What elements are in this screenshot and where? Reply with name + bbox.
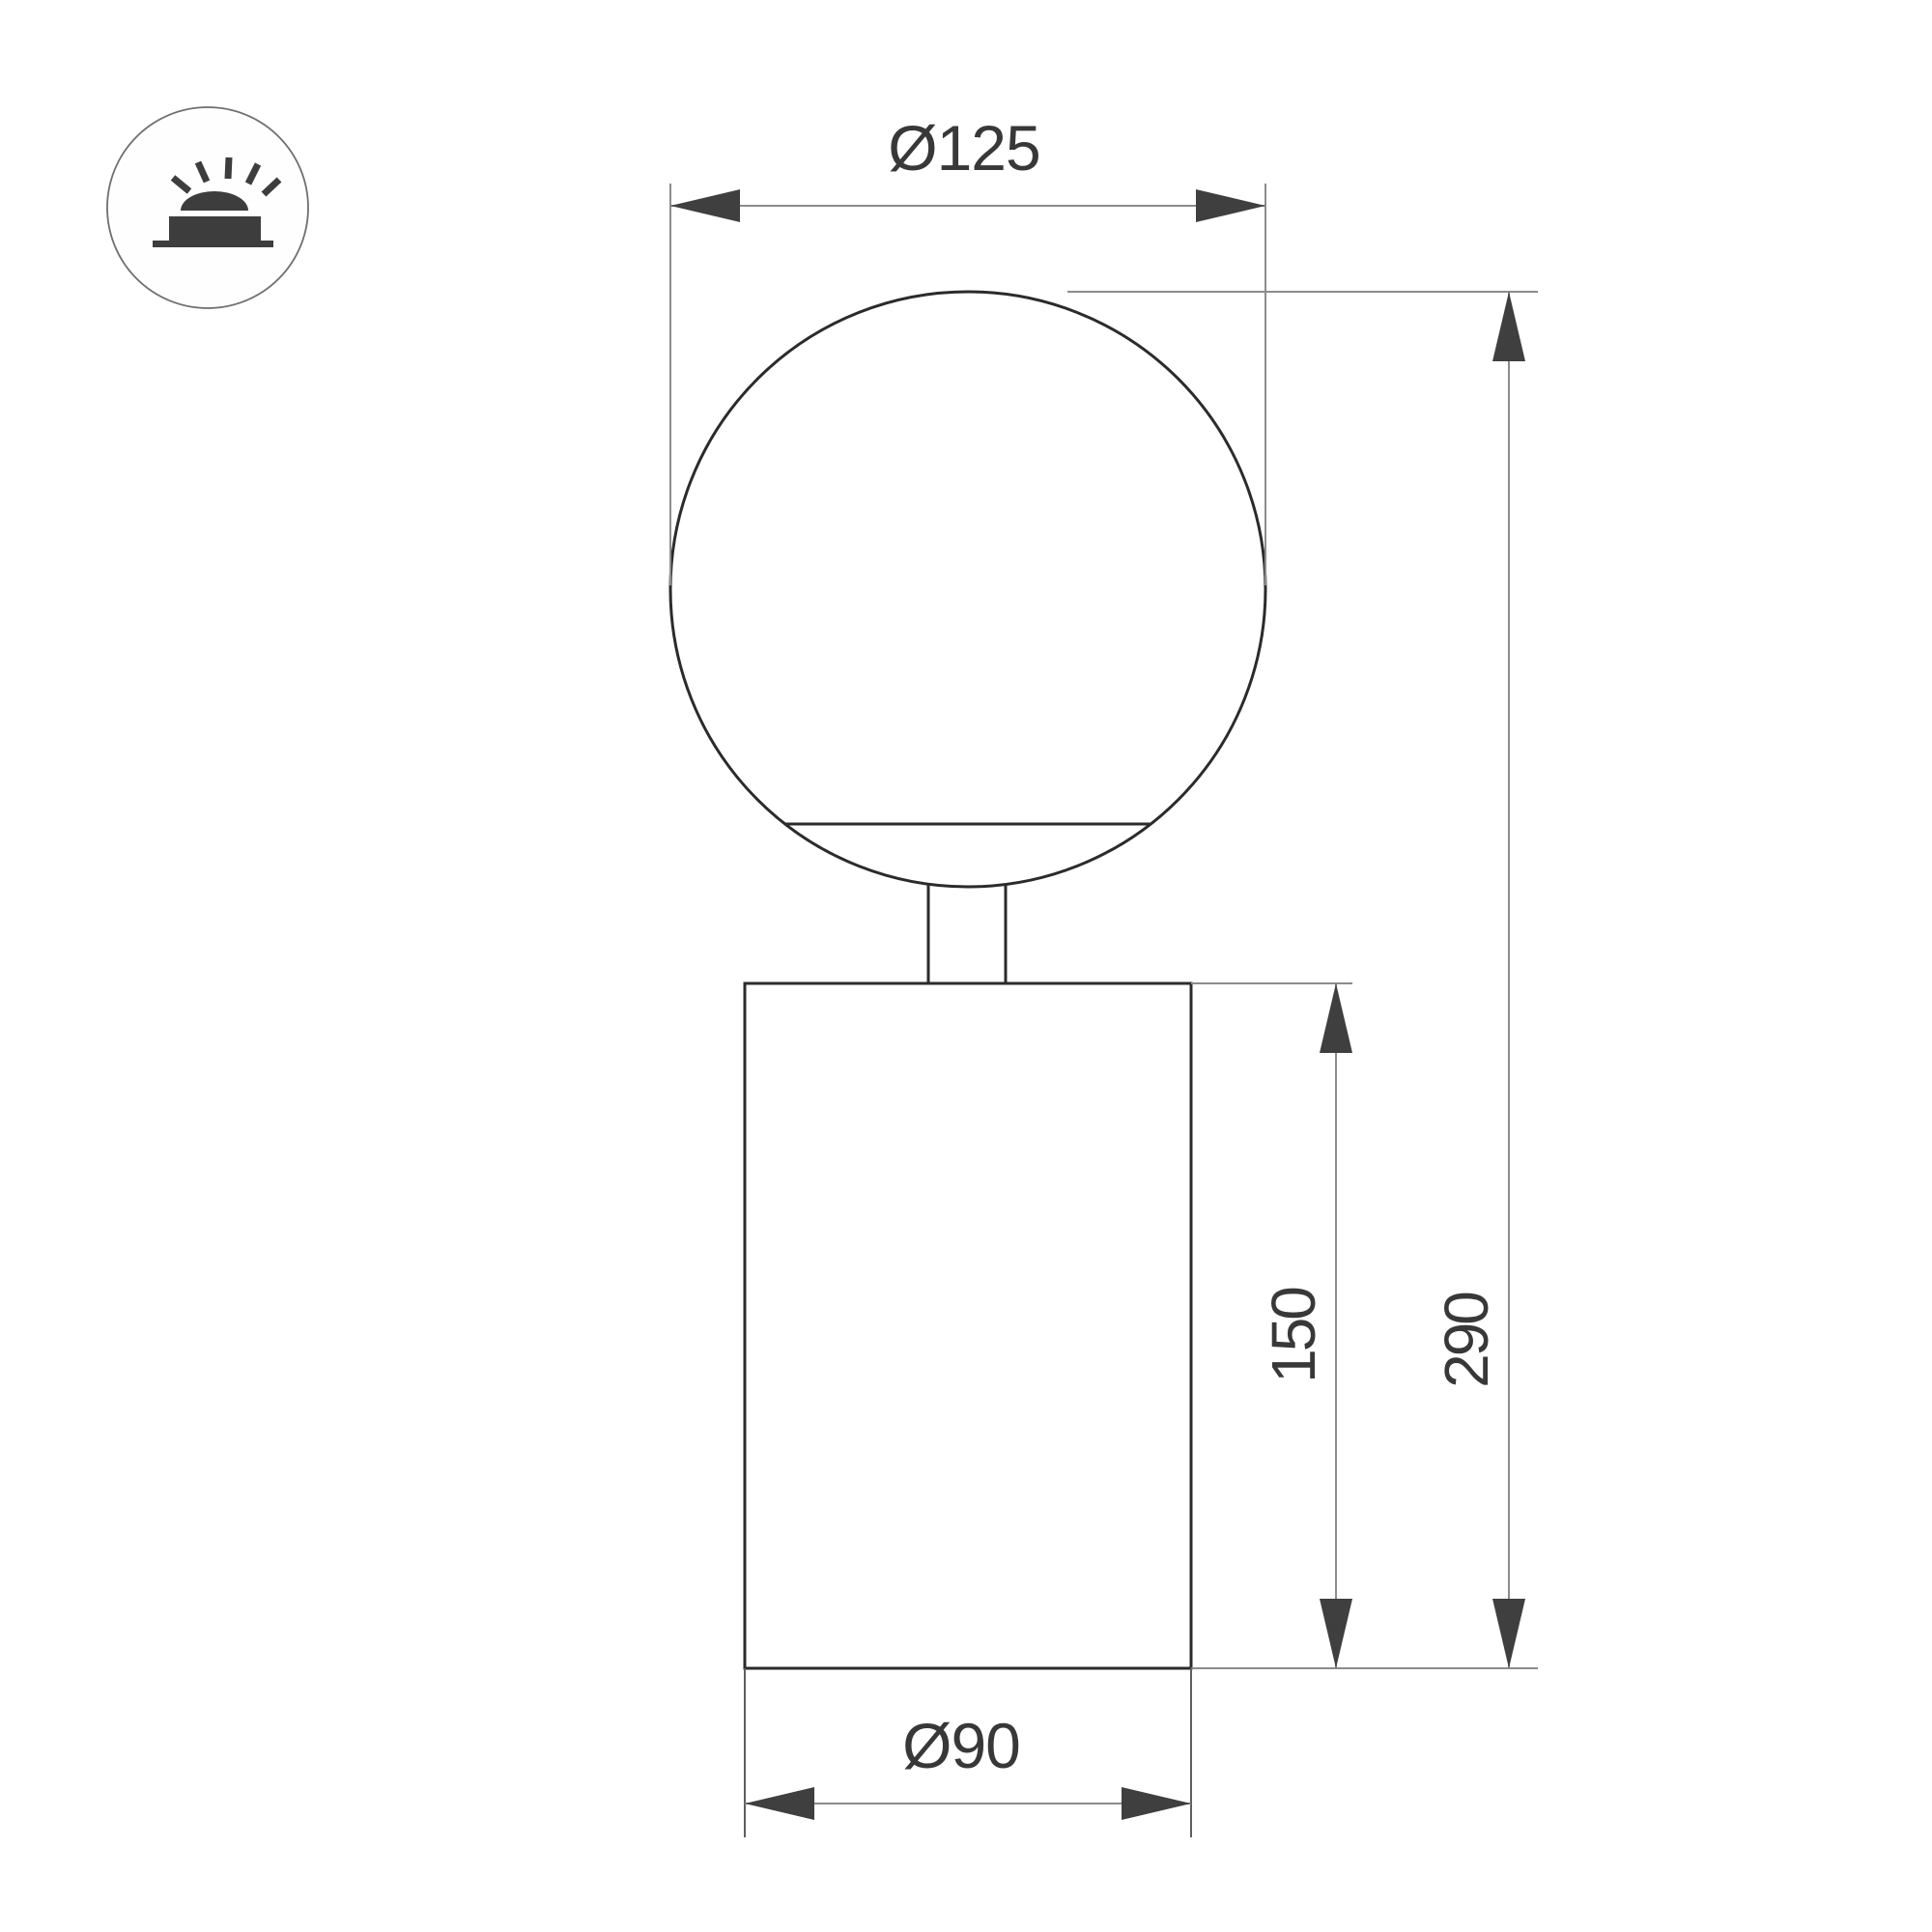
globe-diameter-label: Ø125 <box>888 112 1039 184</box>
dimension-drawing: Ø125 290 150 Ø90 <box>0 0 1932 1932</box>
icon-base-bar <box>153 241 273 247</box>
surface-light-icon <box>107 107 308 308</box>
arrowhead-left-icon <box>670 189 740 222</box>
arrowhead-down-icon <box>1320 1599 1352 1668</box>
arrowhead-right-icon <box>1122 1787 1191 1820</box>
icon-base-block <box>169 216 261 241</box>
arrowhead-up-icon <box>1320 983 1352 1053</box>
drawing-canvas: Ø125 290 150 Ø90 <box>0 0 1932 1932</box>
arrowhead-down-icon <box>1492 1599 1525 1668</box>
lamp-globe <box>670 292 1265 887</box>
dimension-body-diameter: Ø90 <box>745 1668 1191 1837</box>
body-height-label: 150 <box>1259 1288 1328 1383</box>
body-diameter-label: Ø90 <box>902 1710 1020 1781</box>
arrowhead-up-icon <box>1492 292 1525 361</box>
arrowhead-right-icon <box>1196 189 1265 222</box>
lamp-body <box>745 983 1191 1668</box>
lamp-stem <box>928 874 1006 983</box>
overall-height-label: 290 <box>1432 1293 1501 1388</box>
arrowhead-left-icon <box>745 1787 814 1820</box>
